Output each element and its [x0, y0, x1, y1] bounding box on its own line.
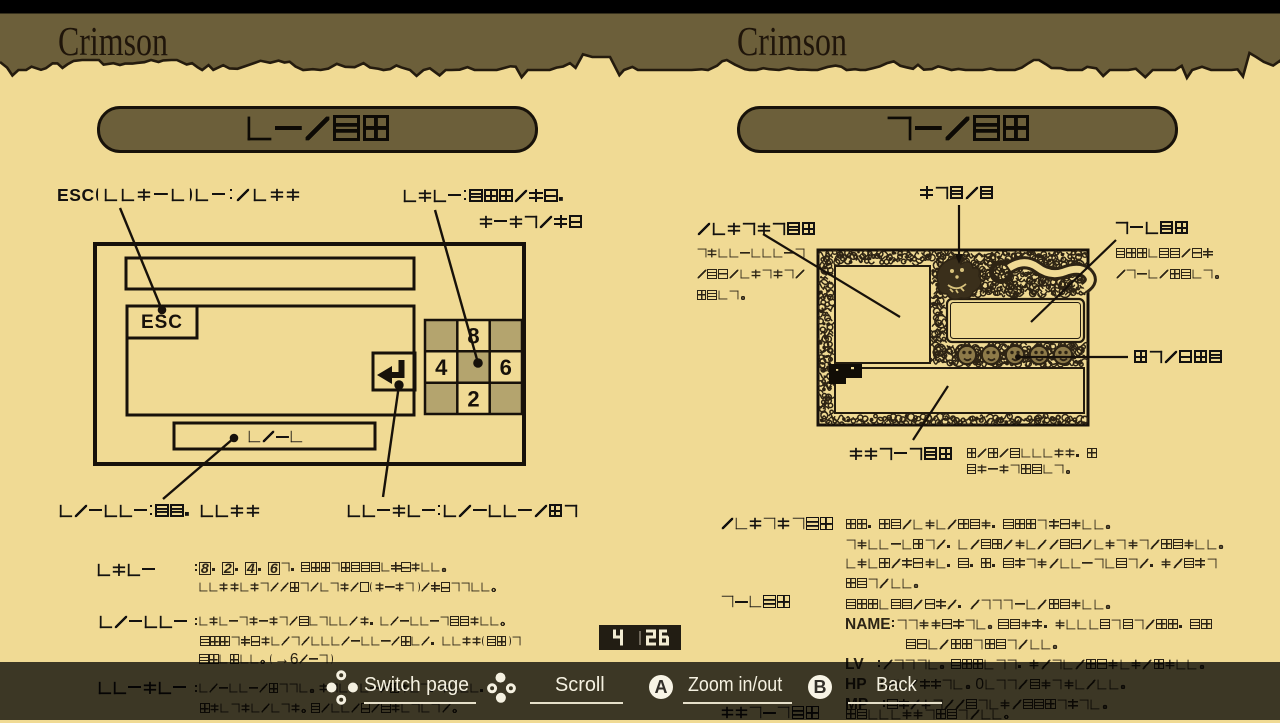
svg-text:B: B: [814, 677, 827, 697]
svg-text:A: A: [655, 677, 668, 697]
svg-text:4: 4: [435, 355, 448, 380]
svg-text:2: 2: [467, 386, 479, 411]
svg-text:ESC: ESC: [141, 312, 183, 333]
svg-text:6: 6: [500, 355, 512, 380]
